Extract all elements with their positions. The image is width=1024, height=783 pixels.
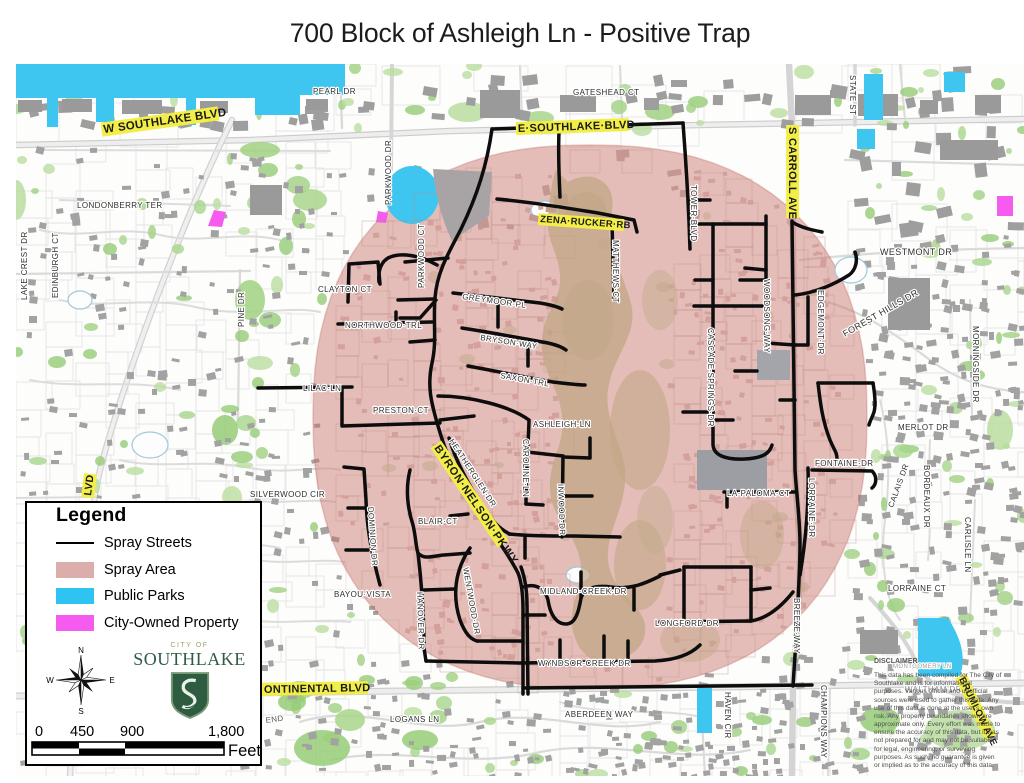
svg-text:LONGFORD·DR: LONGFORD·DR — [655, 619, 719, 628]
svg-text:CARLISLE LN: CARLISLE LN — [963, 517, 972, 573]
svg-text:LORRAINE·DR: LORRAINE·DR — [807, 478, 816, 538]
svg-text:CHAMPIONS WAY: CHAMPIONS WAY — [819, 685, 828, 758]
svg-text:LVD: LVD — [82, 474, 96, 497]
svg-text:EDGEMONT·DR: EDGEMONT·DR — [816, 290, 825, 355]
svg-text:W: W — [46, 676, 54, 685]
svg-text:SILVERWOOD CIR: SILVERWOOD CIR — [250, 490, 325, 499]
svg-text:CAROLINE·LN: CAROLINE·LN — [521, 439, 530, 497]
svg-text:WYNDSOR·CREEK·DR: WYNDSOR·CREEK·DR — [538, 659, 631, 668]
svg-text:Feet: Feet — [228, 742, 261, 759]
svg-text:HAVEN CIR: HAVEN CIR — [723, 692, 732, 739]
svg-text:ASHLEIGH·LN: ASHLEIGH·LN — [533, 420, 591, 429]
svg-text:LILAC·LN: LILAC·LN — [303, 384, 341, 393]
svg-text:CASCADE·SPRINGS·DR: CASCADE·SPRINGS·DR — [706, 328, 715, 427]
svg-text:LOGANS LN: LOGANS LN — [390, 715, 439, 724]
svg-text:BAYOU·VISTA: BAYOU·VISTA — [334, 590, 391, 599]
svg-text:NORTHWOOD·TRL: NORTHWOOD·TRL — [345, 321, 422, 330]
svg-text:BREEZE·WAY: BREEZE·WAY — [792, 598, 801, 654]
svg-text:ABERDEEN WAY: ABERDEEN WAY — [565, 710, 634, 719]
svg-text:TOWER·BLVD: TOWER·BLVD — [689, 185, 698, 242]
svg-text:MATTHEWS·CT: MATTHEWS·CT — [611, 240, 620, 303]
svg-text:PARKWOOD CT: PARKWOOD CT — [417, 224, 426, 288]
svg-text:E: E — [109, 676, 114, 685]
svg-text:WESTMONT DR: WESTMONT DR — [880, 247, 952, 257]
svg-text:LAKE CREST DR: LAKE CREST DR — [20, 231, 29, 300]
svg-text:N: N — [78, 646, 84, 655]
svg-text:MIDLAND·CREEK·DR: MIDLAND·CREEK·DR — [540, 587, 627, 596]
svg-text:BORDEAUX DR: BORDEAUX DR — [922, 465, 931, 528]
svg-text:LA·PALOMA·CT: LA·PALOMA·CT — [727, 489, 790, 498]
svg-text:EDINBURGH CT: EDINBURGH CT — [51, 232, 60, 298]
svg-text:S: S — [78, 707, 83, 716]
svg-text:CLAYTON CT: CLAYTON CT — [318, 285, 372, 294]
svg-text:PARKWOOD DR: PARKWOOD DR — [384, 140, 393, 205]
svg-text:STATE ST: STATE ST — [848, 75, 857, 115]
svg-text:LONDONBERRY TER: LONDONBERRY TER — [77, 201, 163, 210]
svg-text:FONTAINE·DR: FONTAINE·DR — [815, 459, 873, 468]
svg-text:S CARROLL AVE: S CARROLL AVE — [786, 127, 798, 219]
svg-text:GATESHEAD CT: GATESHEAD CT — [573, 88, 639, 97]
svg-text:MERLOT DR: MERLOT DR — [898, 423, 949, 432]
svg-text:PRESTON·CT: PRESTON·CT — [373, 406, 429, 415]
svg-text:MORNINGSIDE DR: MORNINGSIDE DR — [971, 326, 980, 403]
svg-text:ONTINENTAL BLVD: ONTINENTAL BLVD — [264, 682, 371, 696]
svg-text:PEARL DR: PEARL DR — [313, 87, 356, 96]
svg-text:BLAIR·CT: BLAIR·CT — [418, 517, 458, 526]
svg-text:WOODSONG·WAY: WOODSONG·WAY — [762, 279, 771, 353]
svg-text:INWOOD·DR: INWOOD·DR — [556, 484, 567, 536]
svg-text:PINE DR: PINE DR — [237, 292, 246, 327]
svg-text:LORRAINE CT: LORRAINE CT — [888, 584, 946, 593]
